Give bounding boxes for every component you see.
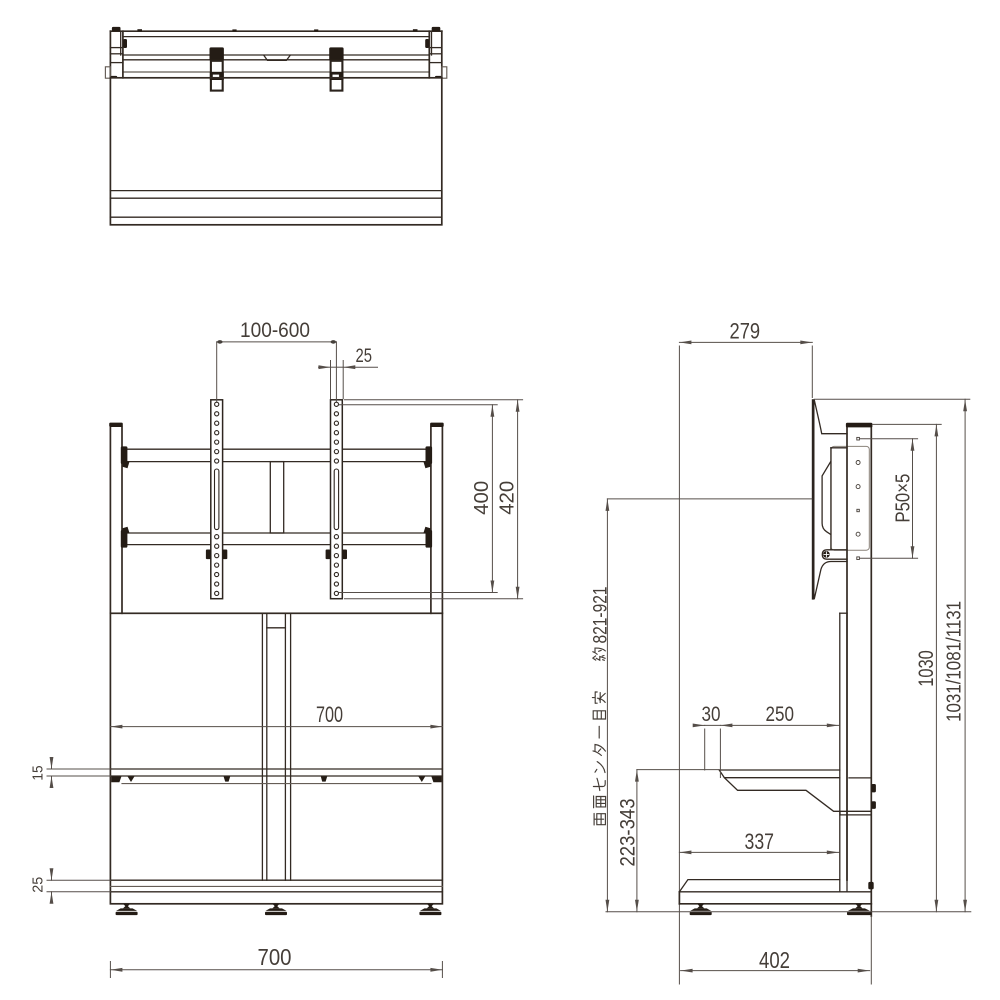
svg-text:30: 30: [702, 703, 721, 726]
svg-text:25: 25: [356, 346, 373, 367]
svg-text:223-343: 223-343: [617, 799, 640, 867]
svg-text:402: 402: [759, 947, 790, 973]
svg-text:420: 420: [496, 481, 518, 515]
svg-text:1030: 1030: [915, 650, 938, 687]
svg-text:337: 337: [745, 829, 775, 854]
svg-text:279: 279: [730, 319, 761, 344]
svg-text:700: 700: [258, 944, 292, 970]
svg-text:250: 250: [766, 703, 795, 726]
svg-text:400: 400: [471, 481, 493, 515]
svg-text:1031/1081/1131: 1031/1081/1131: [944, 601, 966, 722]
svg-text:25: 25: [29, 877, 46, 893]
svg-text:100-600: 100-600: [240, 319, 310, 342]
svg-text:P50×5: P50×5: [892, 474, 914, 523]
svg-text:15: 15: [29, 765, 46, 780]
svg-text:700: 700: [316, 702, 343, 727]
svg-text:821-921: 821-921: [591, 587, 612, 644]
